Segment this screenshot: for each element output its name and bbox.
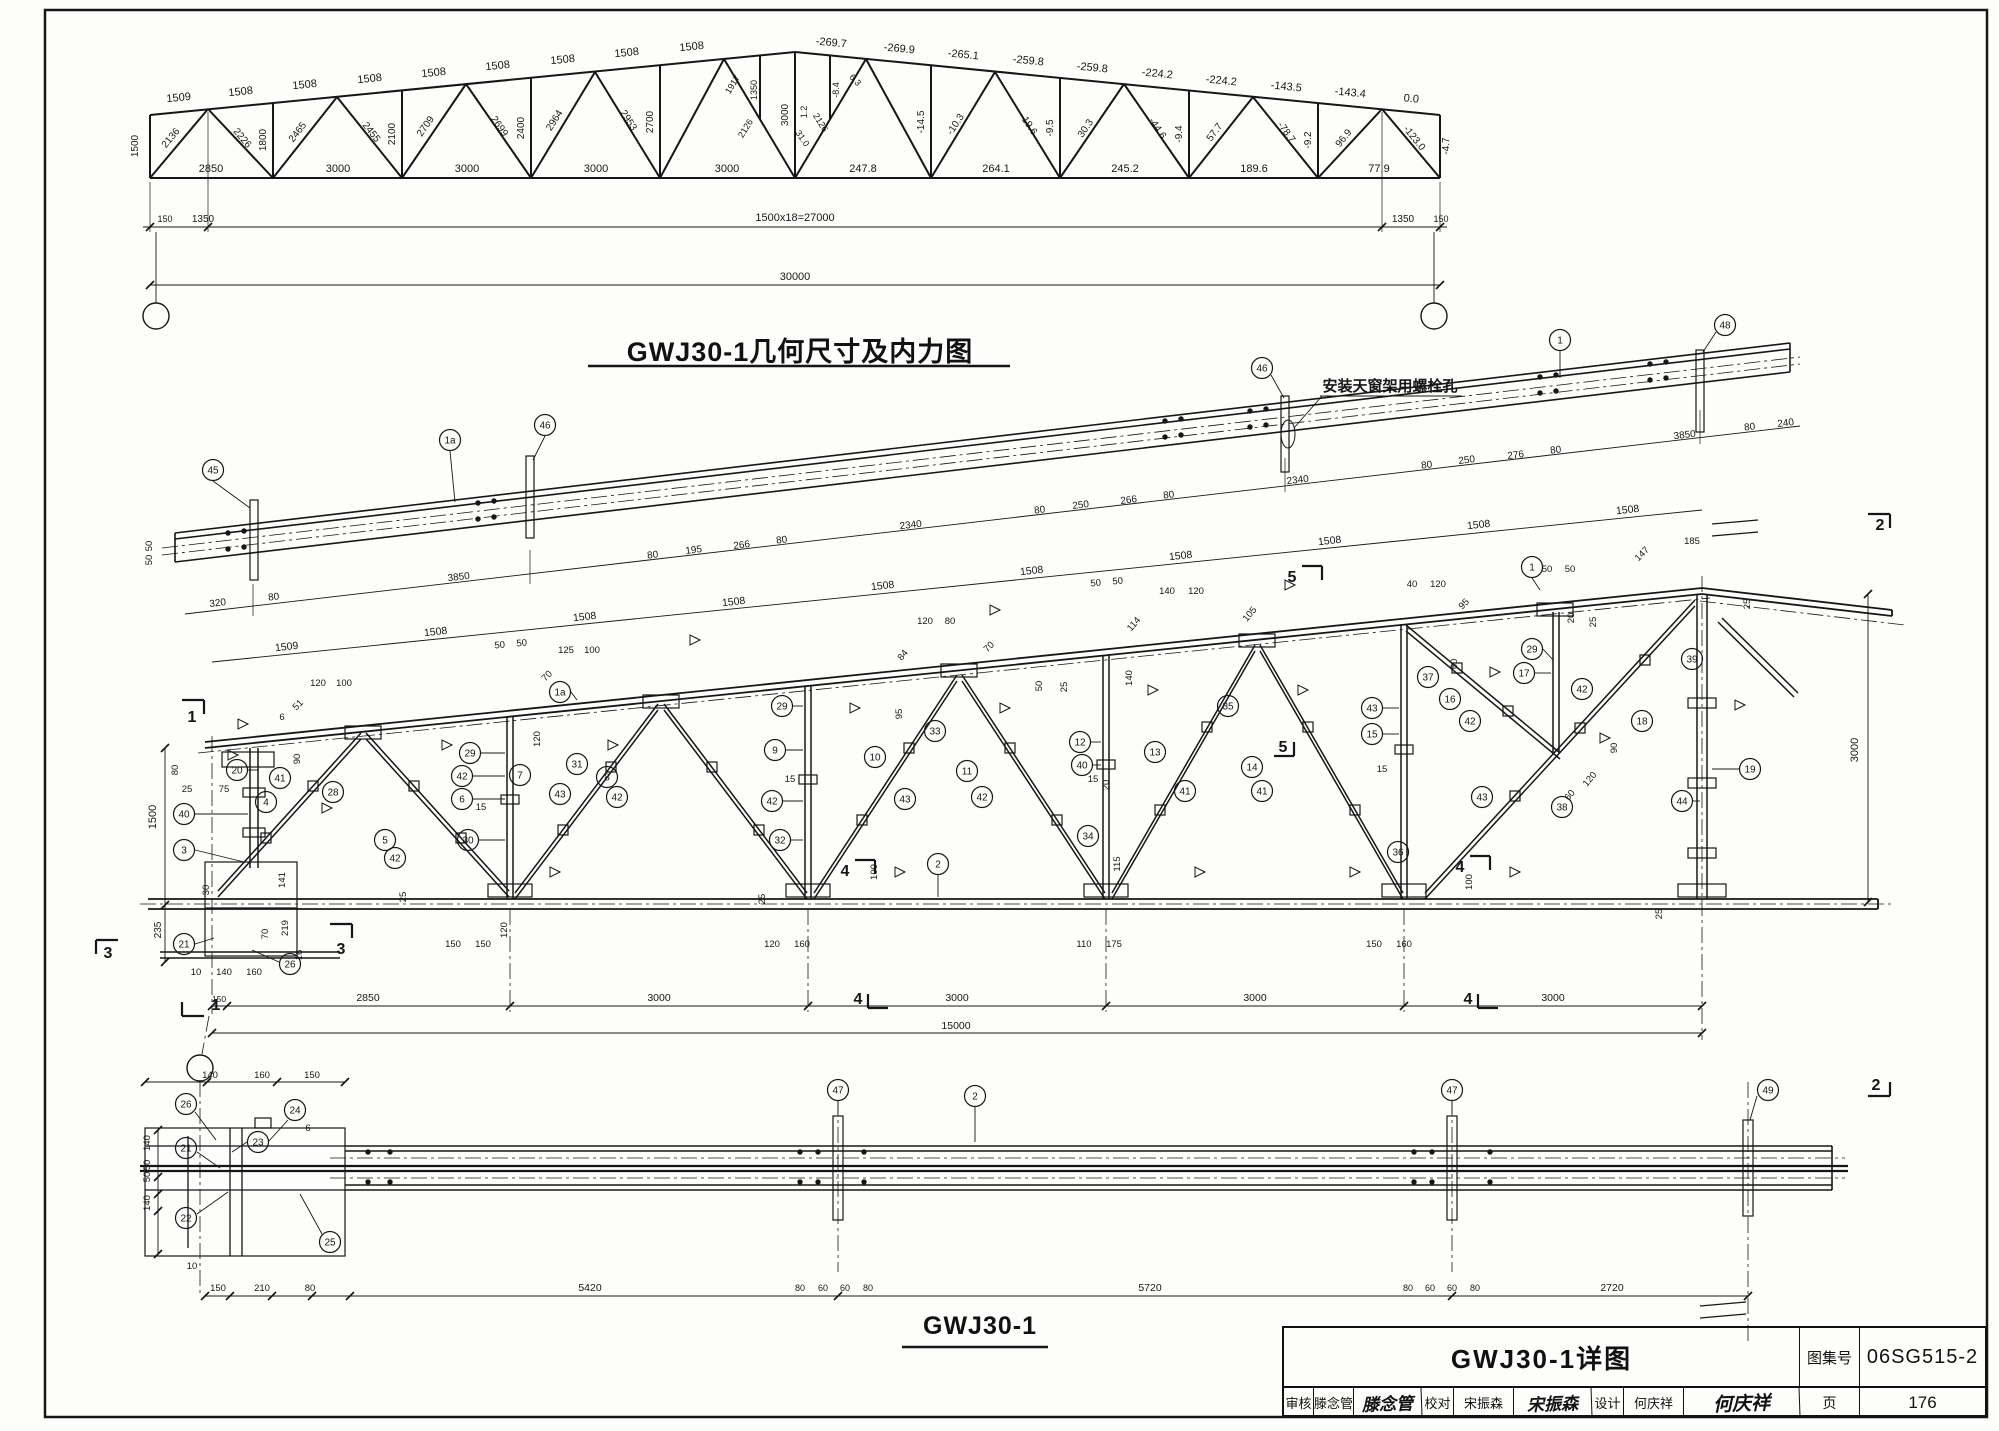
svg-text:4: 4 [854, 991, 863, 1008]
svg-text:15: 15 [1366, 730, 1378, 741]
svg-text:43: 43 [899, 795, 911, 806]
page-label: 页 [1800, 1388, 1860, 1417]
svg-text:75: 75 [219, 784, 230, 795]
svg-text:80: 80 [268, 591, 281, 603]
svg-text:3: 3 [337, 941, 346, 958]
svg-text:60: 60 [1425, 1283, 1435, 1293]
svg-text:80: 80 [795, 1283, 805, 1293]
svg-text:90: 90 [292, 754, 303, 765]
svg-text:50: 50 [1034, 681, 1045, 692]
svg-text:1: 1 [188, 709, 197, 726]
svg-text:80: 80 [1470, 1283, 1480, 1293]
svg-text:31: 31 [571, 760, 583, 771]
svg-text:105: 105 [1241, 605, 1260, 624]
svg-text:50: 50 [144, 541, 155, 552]
svg-text:3000: 3000 [945, 992, 969, 1004]
svg-text:1350: 1350 [749, 80, 759, 100]
svg-text:4: 4 [1456, 859, 1465, 876]
svg-text:125: 125 [558, 645, 574, 656]
svg-text:140: 140 [142, 1135, 153, 1151]
part-number-bubbles: 451a464614820403212641428542294263073143… [174, 315, 1779, 1253]
svg-text:50: 50 [142, 1172, 153, 1183]
svg-text:29: 29 [464, 749, 476, 760]
svg-text:18: 18 [1636, 717, 1648, 728]
reviewer-signature: 滕念管 [1354, 1387, 1423, 1418]
svg-text:80: 80 [305, 1283, 316, 1294]
dimension-texts: 150915081508150815081508150815081508-269… [104, 36, 1885, 1294]
svg-text:219: 219 [280, 920, 291, 936]
svg-text:-269.7: -269.7 [815, 36, 847, 51]
svg-text:2850: 2850 [199, 163, 223, 175]
svg-text:2465: 2465 [287, 120, 310, 145]
svg-text:150: 150 [210, 1283, 226, 1294]
svg-text:276: 276 [1507, 449, 1525, 462]
svg-text:25: 25 [182, 784, 193, 795]
svg-text:2126: 2126 [736, 117, 755, 139]
svg-text:50: 50 [1542, 564, 1553, 575]
svg-text:-265.1: -265.1 [947, 48, 979, 63]
svg-text:60: 60 [818, 1283, 828, 1293]
svg-text:120: 120 [499, 922, 510, 938]
svg-text:120: 120 [310, 678, 326, 689]
svg-text:84: 84 [895, 648, 910, 663]
svg-text:150: 150 [475, 939, 491, 950]
svg-text:80: 80 [945, 616, 956, 627]
svg-text:2340: 2340 [1286, 474, 1310, 488]
svg-text:37: 37 [1422, 673, 1434, 684]
svg-text:1508: 1508 [357, 72, 383, 86]
top-figure-title: GWJ30-1几何尺寸及内力图 [560, 330, 1040, 369]
svg-text:160: 160 [254, 1070, 270, 1081]
svg-text:12: 12 [1074, 738, 1086, 749]
svg-text:26: 26 [180, 1100, 192, 1111]
svg-text:175: 175 [1106, 939, 1122, 950]
svg-text:160: 160 [794, 939, 810, 950]
svg-text:5: 5 [1288, 569, 1297, 586]
svg-text:195: 195 [685, 544, 703, 557]
svg-text:安装天窗架用螺栓孔: 安装天窗架用螺栓孔 [1322, 377, 1457, 395]
svg-text:39: 39 [1686, 655, 1698, 666]
svg-text:115: 115 [1112, 856, 1123, 871]
design-label: 设计 [1592, 1388, 1624, 1417]
svg-text:41: 41 [1256, 787, 1268, 798]
atlas-number-value: 06SG515-2 [1860, 1328, 1985, 1386]
svg-text:50: 50 [1112, 575, 1124, 587]
svg-text:-14.5: -14.5 [916, 110, 927, 133]
svg-text:1509: 1509 [274, 640, 299, 654]
svg-text:1508: 1508 [550, 53, 576, 67]
svg-text:1a: 1a [444, 436, 456, 447]
svg-text:42: 42 [976, 793, 988, 804]
svg-text:160: 160 [1396, 939, 1412, 950]
svg-text:40: 40 [1407, 579, 1418, 590]
svg-text:50: 50 [516, 637, 528, 649]
svg-text:0.0: 0.0 [1403, 92, 1419, 105]
svg-text:3000: 3000 [780, 103, 791, 126]
svg-text:46: 46 [539, 421, 551, 432]
svg-text:-44.6: -44.6 [1146, 116, 1168, 141]
svg-text:150: 150 [1366, 939, 1382, 950]
svg-text:2226: 2226 [231, 126, 254, 150]
svg-text:47: 47 [832, 1086, 844, 1097]
svg-text:-9.5: -9.5 [1045, 119, 1056, 137]
svg-text:29: 29 [1526, 645, 1538, 656]
svg-text:49: 49 [1762, 1086, 1774, 1097]
svg-text:42: 42 [766, 797, 778, 808]
svg-text:15000: 15000 [941, 1020, 970, 1032]
svg-text:15: 15 [785, 774, 796, 785]
svg-text:-4.7: -4.7 [1441, 137, 1452, 155]
svg-text:40: 40 [1076, 761, 1088, 772]
svg-text:77.9: 77.9 [1368, 163, 1389, 175]
svg-text:25: 25 [1742, 599, 1753, 610]
svg-text:189.6: 189.6 [1240, 163, 1268, 175]
svg-text:51: 51 [291, 698, 306, 713]
svg-text:5420: 5420 [578, 1282, 602, 1294]
svg-text:1508: 1508 [1615, 503, 1640, 517]
svg-text:80: 80 [863, 1283, 873, 1293]
plates-and-gussets [145, 350, 1753, 1256]
svg-text:3000: 3000 [715, 163, 739, 175]
svg-text:250: 250 [1072, 499, 1090, 512]
checker-signature: 宋振森 [1514, 1387, 1593, 1419]
svg-text:10: 10 [187, 1261, 198, 1272]
svg-text:140: 140 [1159, 586, 1175, 597]
svg-text:42: 42 [611, 793, 623, 804]
svg-text:24: 24 [289, 1106, 301, 1117]
designer-signature: 何庆祥 [1684, 1386, 1801, 1419]
svg-text:5720: 5720 [1138, 1282, 1162, 1294]
svg-text:141: 141 [277, 872, 288, 888]
svg-text:45: 45 [207, 466, 219, 477]
svg-text:-259.8: -259.8 [1076, 61, 1108, 76]
svg-text:120: 120 [764, 939, 780, 950]
sheet-border [45, 10, 1987, 1417]
svg-text:1508: 1508 [292, 78, 318, 92]
svg-text:48: 48 [1719, 321, 1731, 332]
svg-text:25: 25 [1654, 909, 1665, 920]
svg-text:2964: 2964 [544, 108, 566, 133]
svg-text:32: 32 [774, 836, 786, 847]
svg-text:1508: 1508 [421, 66, 447, 80]
svg-text:160: 160 [246, 967, 262, 978]
svg-text:2709: 2709 [415, 114, 437, 139]
svg-text:2: 2 [935, 860, 941, 871]
svg-text:42: 42 [389, 854, 401, 865]
svg-text:80: 80 [170, 765, 181, 776]
reviewer-name: 滕念管 [1314, 1388, 1354, 1417]
svg-text:15: 15 [1377, 764, 1388, 775]
svg-text:100: 100 [1464, 874, 1475, 890]
svg-text:50: 50 [494, 639, 506, 651]
svg-text:3000: 3000 [326, 163, 350, 175]
svg-text:25: 25 [398, 892, 409, 903]
svg-text:60: 60 [1449, 659, 1460, 670]
svg-text:110: 110 [1076, 939, 1091, 950]
svg-text:80: 80 [1034, 504, 1047, 516]
svg-text:80: 80 [1403, 1283, 1413, 1293]
svg-text:4: 4 [263, 798, 269, 809]
svg-text:42: 42 [456, 772, 468, 783]
svg-text:46: 46 [1256, 364, 1268, 375]
svg-text:-19.6: -19.6 [1017, 112, 1039, 137]
svg-text:36: 36 [1392, 848, 1404, 859]
svg-text:245.2: 245.2 [1111, 163, 1139, 175]
svg-text:14: 14 [1246, 763, 1258, 774]
svg-text:80: 80 [1744, 421, 1757, 433]
svg-text:-143.5: -143.5 [1270, 80, 1302, 95]
check-label: 校对 [1422, 1388, 1454, 1417]
svg-text:147: 147 [1633, 545, 1652, 564]
svg-text:2953: 2953 [617, 108, 639, 133]
svg-text:26: 26 [284, 960, 296, 971]
review-label: 审核 [1284, 1388, 1314, 1417]
svg-text:120: 120 [532, 731, 543, 747]
svg-text:43: 43 [1476, 793, 1488, 804]
svg-text:1350: 1350 [1392, 214, 1415, 225]
svg-text:60: 60 [1447, 1283, 1457, 1293]
svg-text:25: 25 [324, 1238, 336, 1249]
svg-text:120: 120 [1188, 586, 1204, 597]
svg-text:10: 10 [869, 753, 881, 764]
svg-text:47: 47 [1446, 1086, 1458, 1097]
svg-text:35: 35 [1222, 702, 1234, 713]
svg-text:140: 140 [1124, 670, 1135, 686]
svg-text:2340: 2340 [899, 519, 923, 533]
svg-text:20: 20 [1101, 780, 1112, 791]
svg-text:1508: 1508 [614, 46, 640, 60]
truss-detail-drawing: 150915081508150815081508150815081508-269… [0, 0, 1999, 1431]
svg-text:-143.4: -143.4 [1334, 86, 1366, 101]
title-block-drawing-title: GWJ30-1详图 [1284, 1328, 1800, 1386]
svg-text:-123.0: -123.0 [1401, 124, 1428, 153]
svg-text:-224.2: -224.2 [1205, 74, 1237, 89]
svg-text:50: 50 [144, 555, 155, 566]
svg-text:22: 22 [180, 1214, 192, 1225]
svg-text:3000: 3000 [455, 163, 479, 175]
svg-text:31.0: 31.0 [793, 128, 811, 148]
svg-text:50: 50 [1090, 577, 1102, 589]
svg-text:-9.4: -9.4 [1174, 125, 1185, 143]
svg-text:70: 70 [982, 640, 997, 655]
svg-text:15: 15 [476, 802, 487, 813]
bolt-holes [225, 359, 1668, 1184]
svg-text:1a: 1a [554, 688, 566, 699]
svg-text:247.8: 247.8 [849, 163, 877, 175]
svg-text:96.9: 96.9 [1334, 127, 1355, 149]
svg-text:2700: 2700 [645, 110, 656, 133]
checker-name: 宋振森 [1454, 1388, 1514, 1417]
svg-text:240: 240 [1777, 417, 1795, 430]
svg-text:1508: 1508 [679, 40, 705, 54]
svg-text:-78.7: -78.7 [1275, 120, 1298, 145]
svg-text:30: 30 [201, 885, 212, 896]
title-block: GWJ30-1详图 图集号 06SG515-2 审核 滕念管 滕念管 校对 宋振… [1282, 1326, 1987, 1417]
svg-text:42: 42 [1576, 685, 1588, 696]
svg-text:34: 34 [1082, 832, 1094, 843]
svg-text:120: 120 [1581, 770, 1600, 789]
svg-text:1509: 1509 [166, 91, 192, 105]
svg-text:-269.9: -269.9 [883, 42, 915, 57]
svg-text:23: 23 [252, 1138, 264, 1149]
drawing-sheet: 150915081508150815081508150815081508-269… [0, 0, 1999, 1431]
svg-text:4: 4 [841, 863, 850, 880]
svg-text:90: 90 [1609, 743, 1620, 754]
svg-text:2126: 2126 [811, 111, 830, 133]
svg-text:150: 150 [445, 939, 461, 950]
svg-text:4: 4 [1464, 991, 1473, 1008]
svg-text:2455: 2455 [360, 120, 383, 145]
svg-text:1508: 1508 [1466, 518, 1491, 532]
svg-text:1508: 1508 [721, 595, 746, 609]
svg-text:114: 114 [1125, 615, 1143, 634]
svg-text:20: 20 [231, 766, 243, 777]
svg-text:1.2: 1.2 [799, 106, 809, 119]
svg-text:1800: 1800 [258, 128, 269, 151]
svg-text:41: 41 [1179, 787, 1191, 798]
svg-text:1508: 1508 [423, 625, 448, 639]
svg-text:-9.2: -9.2 [1303, 131, 1314, 149]
svg-text:1508: 1508 [1019, 564, 1044, 578]
svg-text:6: 6 [459, 795, 465, 806]
svg-text:1: 1 [1529, 563, 1535, 574]
svg-text:6: 6 [305, 1123, 310, 1134]
svg-text:21: 21 [178, 940, 190, 951]
svg-text:100: 100 [869, 864, 880, 880]
svg-text:2100: 2100 [387, 122, 398, 145]
svg-text:120: 120 [1430, 579, 1446, 590]
page-number: 176 [1860, 1388, 1985, 1417]
atlas-number-label: 图集号 [1800, 1328, 1860, 1386]
svg-text:19: 19 [1744, 765, 1756, 776]
svg-text:150: 150 [157, 214, 172, 224]
svg-text:50: 50 [1565, 564, 1576, 575]
svg-text:266: 266 [1120, 494, 1138, 507]
svg-text:80: 80 [1550, 444, 1563, 456]
svg-text:3000: 3000 [1541, 992, 1565, 1004]
svg-text:1508: 1508 [870, 579, 895, 593]
svg-text:17: 17 [1518, 669, 1530, 680]
svg-text:100: 100 [336, 678, 352, 689]
svg-text:70: 70 [260, 929, 271, 940]
svg-text:28: 28 [327, 788, 339, 799]
svg-text:11: 11 [962, 767, 973, 778]
svg-text:235: 235 [153, 921, 164, 938]
svg-text:2720: 2720 [1600, 1282, 1624, 1294]
svg-text:140: 140 [202, 1070, 218, 1081]
svg-text:43: 43 [1366, 704, 1378, 715]
svg-text:38: 38 [1556, 803, 1568, 814]
svg-text:95: 95 [894, 709, 905, 720]
svg-text:2400: 2400 [516, 116, 527, 139]
dimension-ticks [141, 223, 1872, 1300]
svg-text:120: 120 [917, 616, 933, 627]
hole-callout-ellipse [1281, 420, 1295, 448]
svg-text:95: 95 [1457, 597, 1472, 612]
svg-text:16: 16 [1444, 695, 1456, 706]
svg-text:80: 80 [1421, 459, 1434, 471]
svg-text:3: 3 [181, 846, 187, 857]
truss-members [150, 52, 1440, 178]
svg-text:-259.8: -259.8 [1012, 54, 1044, 69]
svg-text:2136: 2136 [160, 126, 183, 150]
detail-lines [96, 112, 1892, 1347]
svg-text:140: 140 [142, 1195, 153, 1211]
svg-text:5: 5 [382, 836, 388, 847]
svg-text:1: 1 [1557, 336, 1563, 347]
svg-text:6: 6 [279, 712, 284, 723]
svg-text:1350: 1350 [192, 214, 215, 225]
svg-text:150: 150 [304, 1070, 320, 1081]
svg-text:80: 80 [647, 549, 660, 561]
svg-text:80: 80 [1163, 489, 1176, 501]
svg-text:25: 25 [1059, 682, 1070, 693]
svg-text:1500x18=27000: 1500x18=27000 [755, 212, 834, 224]
svg-text:-8.4: -8.4 [831, 82, 841, 98]
svg-text:3: 3 [104, 945, 113, 962]
svg-text:1508: 1508 [228, 85, 254, 99]
svg-text:100: 100 [584, 645, 600, 656]
svg-text:1508: 1508 [572, 610, 597, 624]
svg-text:13: 13 [1149, 748, 1161, 759]
svg-text:266: 266 [733, 539, 751, 552]
svg-text:10: 10 [191, 967, 202, 978]
svg-text:40: 40 [178, 810, 190, 821]
svg-text:9: 9 [772, 746, 778, 757]
svg-text:25: 25 [757, 894, 768, 905]
svg-text:3850: 3850 [447, 571, 471, 585]
svg-text:50: 50 [142, 1160, 153, 1171]
svg-text:2: 2 [1872, 1077, 1881, 1094]
svg-text:250: 250 [1458, 454, 1476, 467]
svg-text:20: 20 [1566, 613, 1577, 624]
svg-text:5: 5 [1279, 739, 1288, 756]
svg-text:3000: 3000 [647, 992, 671, 1004]
centerlines [140, 357, 1905, 1344]
designer-name: 何庆祥 [1624, 1388, 1684, 1417]
svg-text:185: 185 [1684, 536, 1700, 547]
svg-text:30000: 30000 [780, 271, 811, 283]
svg-text:-224.2: -224.2 [1141, 67, 1173, 82]
svg-text:44: 44 [1676, 797, 1688, 808]
svg-text:320: 320 [209, 597, 227, 610]
svg-text:15: 15 [1088, 774, 1099, 785]
svg-text:264.1: 264.1 [982, 163, 1010, 175]
svg-text:140: 140 [216, 967, 232, 978]
svg-text:3000: 3000 [584, 163, 608, 175]
svg-text:1500: 1500 [130, 134, 141, 157]
detail-figure-title: GWJ30-1 [880, 1312, 1080, 1341]
svg-text:42: 42 [1464, 717, 1476, 728]
svg-text:2: 2 [972, 1092, 978, 1103]
svg-text:2: 2 [1876, 517, 1885, 534]
svg-text:80: 80 [776, 534, 789, 546]
svg-text:2699: 2699 [488, 114, 510, 139]
svg-text:1500: 1500 [147, 805, 159, 829]
svg-text:7: 7 [517, 771, 523, 782]
svg-text:21: 21 [180, 1144, 192, 1155]
svg-text:3850: 3850 [1673, 429, 1697, 443]
svg-text:3000: 3000 [1243, 992, 1267, 1004]
svg-text:1508: 1508 [485, 59, 511, 73]
svg-text:1508: 1508 [1168, 549, 1193, 563]
svg-text:29: 29 [776, 702, 788, 713]
svg-text:30: 30 [462, 836, 474, 847]
svg-text:41: 41 [274, 774, 286, 785]
svg-text:70: 70 [540, 669, 555, 684]
svg-text:33: 33 [929, 727, 941, 738]
svg-text:3000: 3000 [1849, 738, 1861, 762]
